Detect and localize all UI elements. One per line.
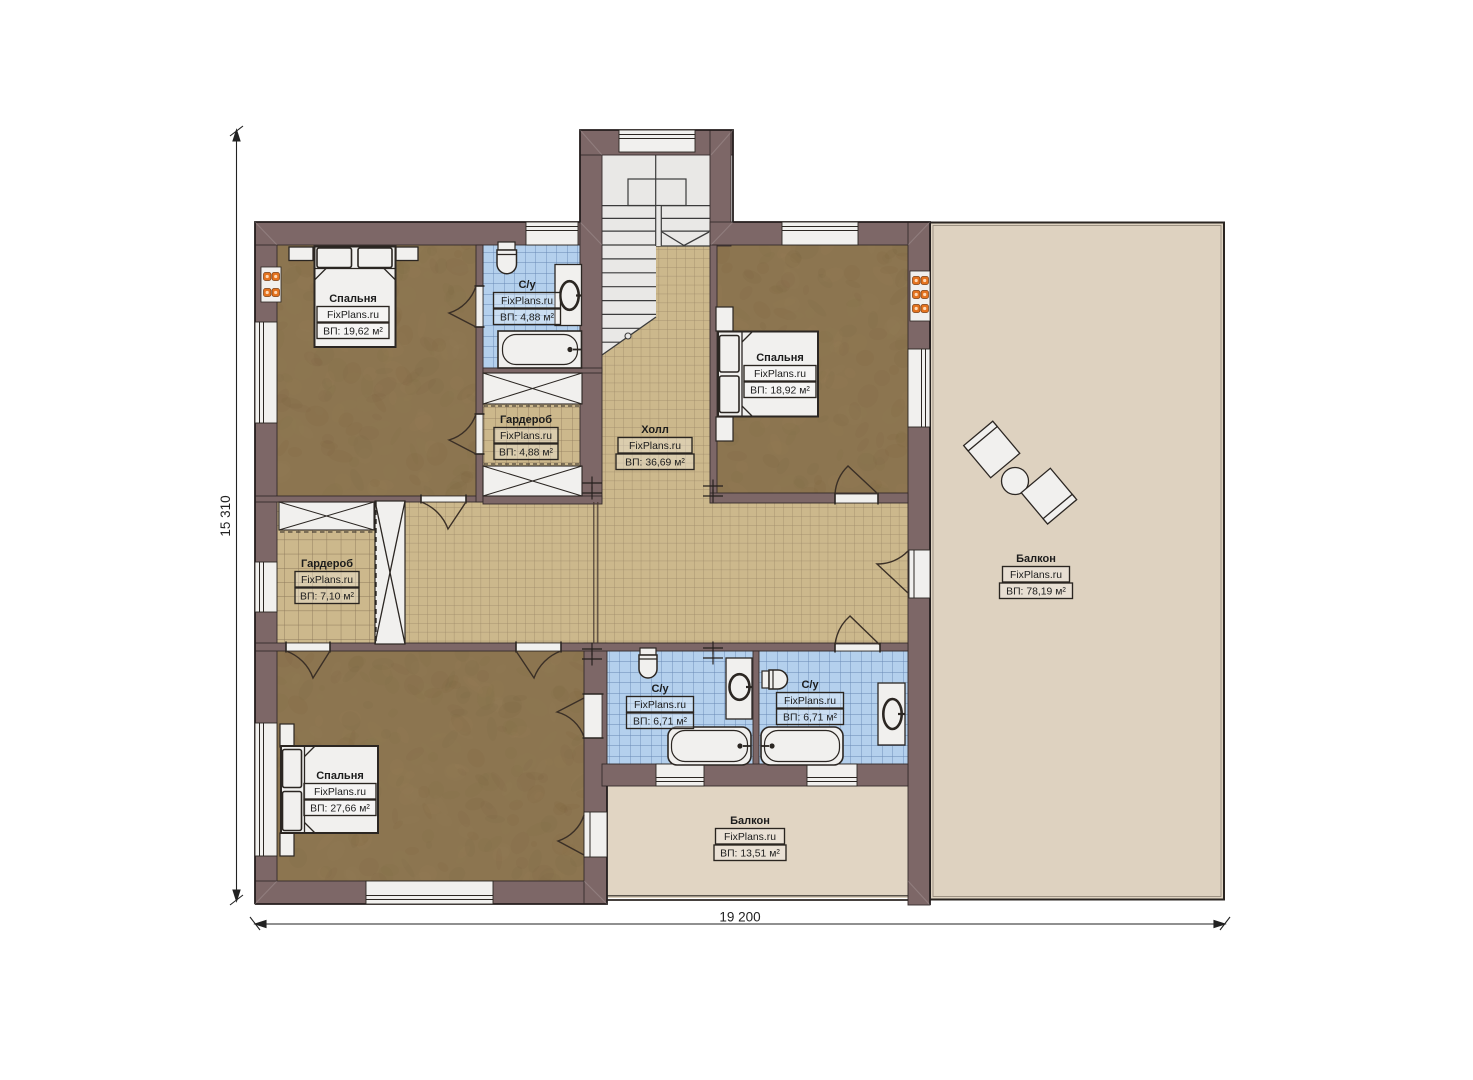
svg-text:Балкон: Балкон <box>730 815 770 827</box>
svg-text:С/у: С/у <box>518 279 536 291</box>
svg-text:FixPlans.ru: FixPlans.ru <box>754 369 806 380</box>
svg-text:ВП: 7,10 м²: ВП: 7,10 м² <box>300 592 354 603</box>
svg-text:Гардероб: Гардероб <box>500 414 552 426</box>
svg-text:ВП: 6,71 м²: ВП: 6,71 м² <box>633 717 687 728</box>
svg-text:С/у: С/у <box>801 679 819 691</box>
svg-text:ВП: 36,69 м²: ВП: 36,69 м² <box>625 458 685 469</box>
svg-text:ВП: 4,88 м²: ВП: 4,88 м² <box>500 313 554 324</box>
svg-text:FixPlans.ru: FixPlans.ru <box>784 696 836 707</box>
svg-text:FixPlans.ru: FixPlans.ru <box>500 431 552 442</box>
svg-text:FixPlans.ru: FixPlans.ru <box>724 832 776 843</box>
svg-text:15 310: 15 310 <box>218 495 233 536</box>
svg-text:FixPlans.ru: FixPlans.ru <box>314 787 366 798</box>
svg-text:ВП: 18,92 м²: ВП: 18,92 м² <box>750 386 810 397</box>
svg-text:ВП: 19,62 м²: ВП: 19,62 м² <box>323 327 383 338</box>
svg-text:ВП: 13,51 м²: ВП: 13,51 м² <box>720 849 780 860</box>
svg-text:FixPlans.ru: FixPlans.ru <box>634 700 686 711</box>
svg-text:Спальня: Спальня <box>329 293 377 305</box>
svg-text:FixPlans.ru: FixPlans.ru <box>327 310 379 321</box>
svg-text:FixPlans.ru: FixPlans.ru <box>501 296 553 307</box>
svg-text:Холл: Холл <box>641 424 669 436</box>
svg-text:Спальня: Спальня <box>756 352 804 364</box>
svg-text:FixPlans.ru: FixPlans.ru <box>301 575 353 586</box>
svg-text:ВП: 4,88 м²: ВП: 4,88 м² <box>499 448 553 459</box>
svg-text:ВП: 78,19 м²: ВП: 78,19 м² <box>1006 587 1066 598</box>
svg-text:ВП: 27,66 м²: ВП: 27,66 м² <box>310 804 370 815</box>
svg-text:Гардероб: Гардероб <box>301 558 353 570</box>
svg-text:19 200: 19 200 <box>719 910 760 925</box>
svg-text:FixPlans.ru: FixPlans.ru <box>1010 570 1062 581</box>
svg-text:ВП: 6,71 м²: ВП: 6,71 м² <box>783 713 837 724</box>
svg-text:FixPlans.ru: FixPlans.ru <box>629 441 681 452</box>
svg-text:С/у: С/у <box>651 683 669 695</box>
svg-text:Спальня: Спальня <box>316 770 364 782</box>
svg-text:Балкон: Балкон <box>1016 553 1056 565</box>
